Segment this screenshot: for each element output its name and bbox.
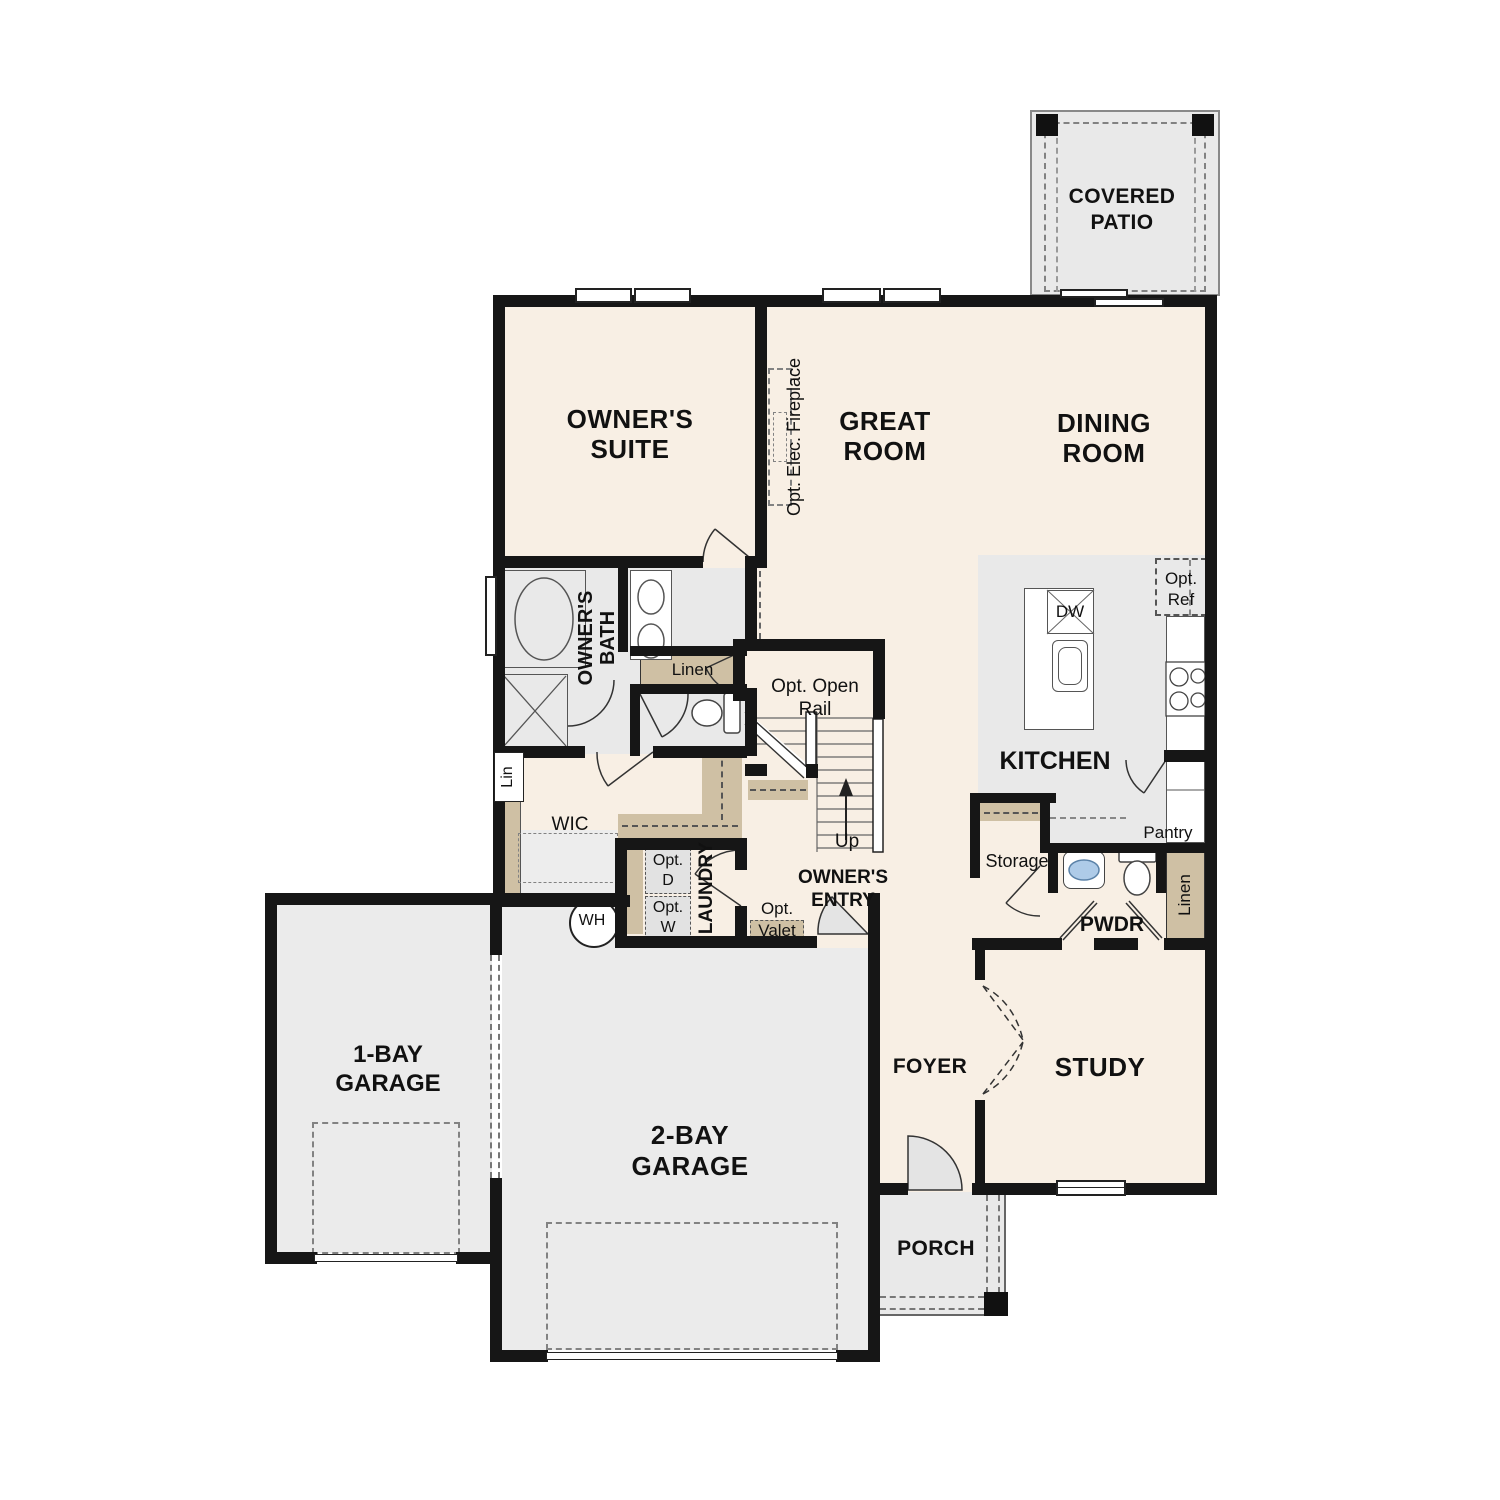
wall xyxy=(618,568,628,652)
window xyxy=(575,288,632,303)
study-window xyxy=(1056,1180,1126,1196)
wall xyxy=(1156,843,1166,893)
label-opt-open-rail: Opt. Open Rail xyxy=(753,675,877,721)
room-label-dining-room: DINING ROOM xyxy=(1009,408,1199,468)
storage-door xyxy=(1006,866,1040,916)
wall xyxy=(1164,750,1217,762)
room-label-pwdr: PWDR xyxy=(1067,913,1157,937)
wall xyxy=(975,1100,985,1195)
room-label-1bay-garage: 1-BAY GARAGE xyxy=(288,1040,488,1098)
wall xyxy=(745,556,757,650)
wall xyxy=(265,893,277,1264)
wall xyxy=(836,1350,880,1362)
wall xyxy=(735,838,747,870)
room-label-owners-suite: OWNER'S SUITE xyxy=(530,404,730,464)
wall xyxy=(615,838,747,850)
window xyxy=(634,288,691,303)
wall xyxy=(265,893,505,905)
vanity-sink-1 xyxy=(638,580,664,614)
wall xyxy=(975,950,985,980)
wall xyxy=(490,893,502,955)
label-up: Up xyxy=(827,831,867,853)
wall xyxy=(653,746,747,758)
wall xyxy=(868,893,880,1362)
label-opt-ref: Opt. Ref xyxy=(1153,568,1209,610)
room-label-porch: PORCH xyxy=(886,1236,986,1262)
wall xyxy=(630,684,747,694)
wall xyxy=(972,938,1062,950)
room-label-owners-bath: OWNER'S BATH xyxy=(575,558,619,718)
bath-window xyxy=(485,576,497,656)
wall xyxy=(456,1252,502,1264)
label-linen-bath: Linen xyxy=(642,659,743,681)
bathtub-basin xyxy=(515,578,573,660)
label-opt-elec-fireplace: Opt. Elec. Fireplace xyxy=(783,337,803,537)
room-label-great-room: GREAT ROOM xyxy=(790,406,980,466)
room-label-laundry: LAUNDRY xyxy=(696,828,718,948)
wall xyxy=(972,1183,1060,1195)
wall xyxy=(630,694,640,756)
label-dw: DW xyxy=(1046,602,1094,622)
up-arrow-head xyxy=(839,778,853,796)
patio-slider-door xyxy=(1060,289,1128,298)
garage1-door-opening xyxy=(314,1254,458,1262)
wall xyxy=(490,1350,548,1362)
patio-slider-door xyxy=(1094,298,1164,307)
shower-x xyxy=(504,676,566,746)
window xyxy=(822,288,881,303)
wall xyxy=(745,764,767,776)
label-pantry: Pantry xyxy=(1128,822,1208,844)
wall xyxy=(1205,295,1217,1195)
label-opt-d: Opt. D xyxy=(645,851,691,891)
room-label-foyer: FOYER xyxy=(875,1054,985,1080)
entry-door-wedges xyxy=(818,897,962,1190)
pwdr-sink-basin xyxy=(1069,860,1099,880)
toilet-room-door xyxy=(640,694,688,737)
wall xyxy=(265,1252,317,1264)
room-label-study: STUDY xyxy=(1020,1052,1180,1082)
front-door xyxy=(908,1136,962,1190)
room-label-wic: WIC xyxy=(540,814,600,836)
room-label-kitchen: KITCHEN xyxy=(975,747,1135,776)
wall xyxy=(806,764,818,778)
label-wh: WH xyxy=(569,898,615,944)
room-label-2bay-garage: 2-BAY GARAGE xyxy=(580,1120,800,1182)
wall xyxy=(1094,938,1138,950)
pwdr-toilet-icon xyxy=(1119,849,1156,895)
wic-door xyxy=(597,752,653,786)
range-icon xyxy=(1166,662,1205,716)
wall xyxy=(733,639,885,651)
label-linen-hall: Linen xyxy=(1175,850,1195,940)
window xyxy=(883,288,941,303)
study-french-doors xyxy=(983,986,1023,1094)
wall xyxy=(1124,1183,1217,1195)
wall xyxy=(755,295,767,568)
label-lin: Lin xyxy=(499,745,519,809)
label-opt-w: Opt. W xyxy=(645,898,691,938)
room-label-covered-patio: COVERED PATIO xyxy=(1037,184,1207,236)
wall xyxy=(630,646,747,656)
garage2-door-opening xyxy=(546,1352,838,1360)
label-storage: Storage xyxy=(972,850,1062,872)
stair-rail-right xyxy=(873,719,883,852)
wall xyxy=(490,1178,502,1362)
label-opt-valet: Opt. Valet xyxy=(747,898,807,942)
floor-plan: COVERED PATIO OWNER'S SUITE GREAT ROOM D… xyxy=(0,0,1500,1500)
